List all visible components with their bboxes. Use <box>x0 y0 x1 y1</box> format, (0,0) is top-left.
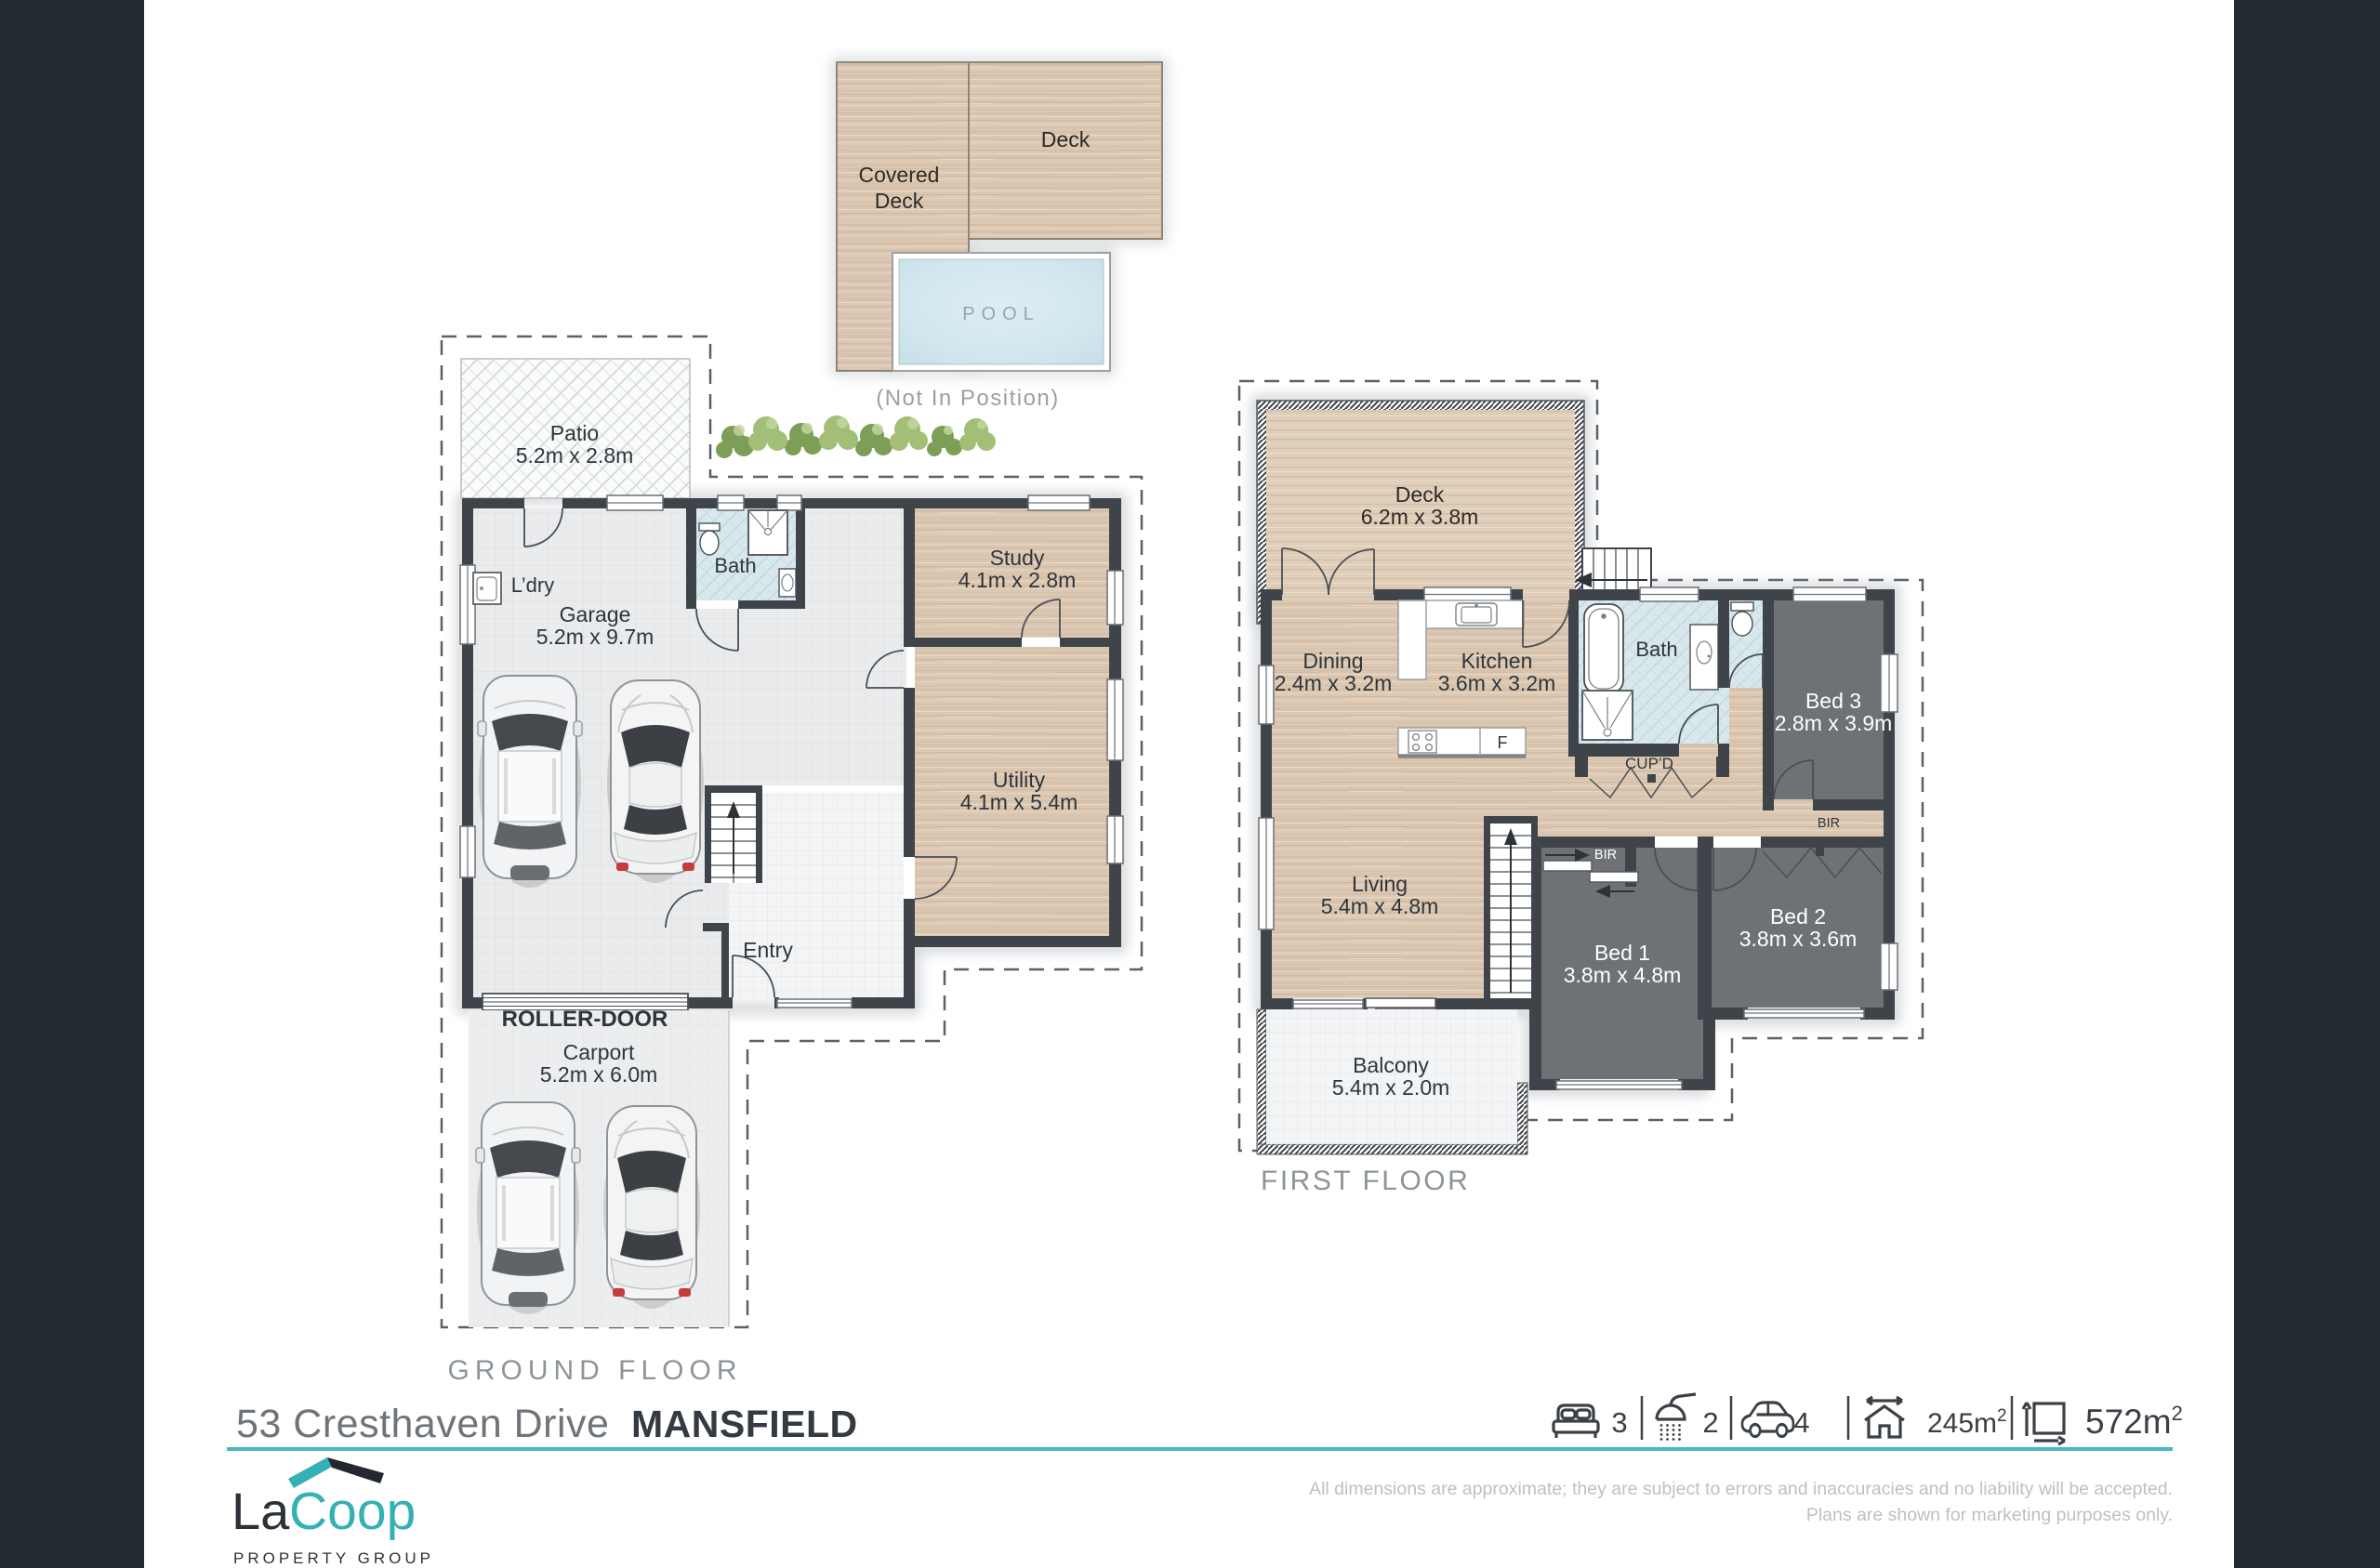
svg-text:3.8m x 3.6m: 3.8m x 3.6m <box>1739 927 1858 951</box>
svg-text:Utility: Utility <box>993 768 1046 792</box>
svg-text:PROPERTY GROUP: PROPERTY GROUP <box>233 1549 434 1567</box>
svg-text:Kitchen: Kitchen <box>1461 649 1533 673</box>
svg-text:53 Cresthaven Drive: 53 Cresthaven Drive <box>236 1402 609 1446</box>
svg-text:5.2m x 6.0m: 5.2m x 6.0m <box>540 1062 658 1087</box>
svg-text:3: 3 <box>1611 1406 1627 1439</box>
svg-text:Entry: Entry <box>743 938 793 962</box>
svg-text:5.4m x 2.0m: 5.4m x 2.0m <box>1332 1075 1450 1100</box>
svg-text:Study: Study <box>990 546 1045 570</box>
svg-text:Balcony: Balcony <box>1353 1053 1429 1077</box>
svg-text:La: La <box>231 1482 290 1540</box>
svg-text:4.1m x 5.4m: 4.1m x 5.4m <box>960 790 1078 814</box>
svg-text:Bath: Bath <box>714 554 756 577</box>
svg-text:Patio: Patio <box>550 421 599 445</box>
svg-text:4.1m x 2.8m: 4.1m x 2.8m <box>959 568 1077 592</box>
svg-text:Deck: Deck <box>1041 127 1091 152</box>
svg-text:L’dry: L’dry <box>511 573 554 597</box>
svg-text:ROLLER-DOOR: ROLLER-DOOR <box>502 1007 668 1032</box>
svg-text:Dining: Dining <box>1302 649 1363 673</box>
svg-text:2: 2 <box>1702 1406 1718 1439</box>
svg-text:Bed 1: Bed 1 <box>1594 941 1650 965</box>
svg-text:(Not In Position): (Not In Position) <box>876 386 1060 411</box>
svg-text:CUP’D: CUP’D <box>1625 755 1673 772</box>
svg-text:Deck: Deck <box>875 189 924 213</box>
svg-text:Plans are shown for marketing: Plans are shown for marketing purposes o… <box>1806 1505 2173 1525</box>
svg-text:Garage: Garage <box>560 602 631 626</box>
svg-text:5.4m x 4.8m: 5.4m x 4.8m <box>1321 894 1439 918</box>
svg-text:Deck: Deck <box>1395 482 1445 507</box>
svg-text:Carport: Carport <box>563 1040 635 1064</box>
svg-text:2.8m x 3.9m: 2.8m x 3.9m <box>1775 711 1893 735</box>
svg-text:5.2m x 2.8m: 5.2m x 2.8m <box>516 443 634 468</box>
svg-text:245m2: 245m2 <box>1927 1406 2007 1439</box>
svg-text:572m2: 572m2 <box>2085 1402 2183 1441</box>
svg-text:Coop: Coop <box>289 1482 416 1541</box>
svg-text:2.4m x 3.2m: 2.4m x 3.2m <box>1275 671 1393 695</box>
svg-text:MANSFIELD: MANSFIELD <box>631 1403 858 1445</box>
svg-text:Living: Living <box>1352 872 1408 896</box>
svg-text:POOL: POOL <box>962 304 1040 324</box>
svg-text:Bed 2: Bed 2 <box>1770 904 1826 929</box>
svg-text:GROUND FLOOR: GROUND FLOOR <box>447 1355 742 1386</box>
svg-text:BIR: BIR <box>1818 816 1840 831</box>
svg-text:F: F <box>1498 733 1508 752</box>
svg-text:6.2m x 3.8m: 6.2m x 3.8m <box>1361 505 1479 529</box>
svg-text:Covered: Covered <box>859 163 940 187</box>
svg-text:All dimensions are approximate: All dimensions are approximate; they are… <box>1309 1479 2173 1499</box>
svg-text:3.6m x 3.2m: 3.6m x 3.2m <box>1438 671 1556 695</box>
svg-text:FIRST FLOOR: FIRST FLOOR <box>1261 1166 1470 1196</box>
svg-text:5.2m x 9.7m: 5.2m x 9.7m <box>536 625 654 649</box>
svg-text:3.8m x 4.8m: 3.8m x 4.8m <box>1564 963 1682 987</box>
svg-text:Bath: Bath <box>1635 638 1677 661</box>
svg-text:Bed 3: Bed 3 <box>1805 689 1861 713</box>
svg-text:BIR: BIR <box>1594 848 1617 863</box>
svg-text:4: 4 <box>1793 1406 1809 1439</box>
